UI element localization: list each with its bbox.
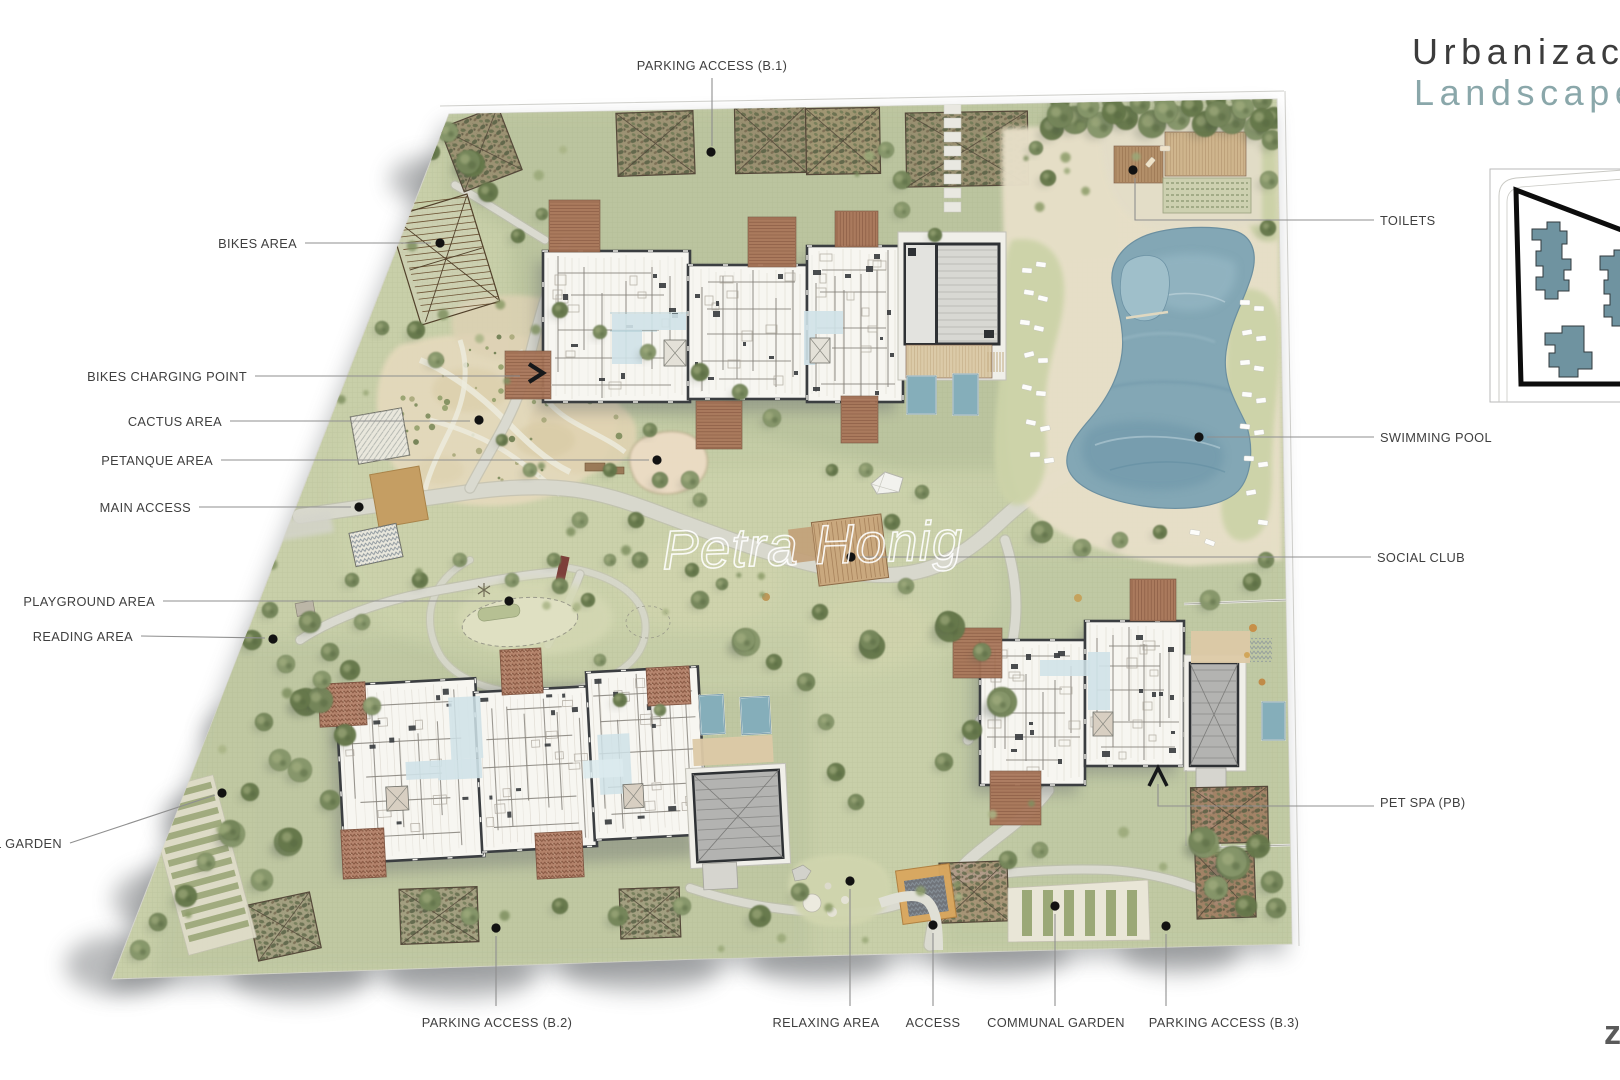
svg-text:COMMUNAL GARDEN: COMMUNAL GARDEN xyxy=(0,836,62,851)
svg-text:TOILETS: TOILETS xyxy=(1380,213,1436,228)
svg-text:READING AREA: READING AREA xyxy=(33,629,133,644)
svg-text:PARKING ACCESS (B.1): PARKING ACCESS (B.1) xyxy=(637,58,787,73)
svg-text:ACCESS: ACCESS xyxy=(906,1015,961,1030)
svg-text:Urbanización: Urbanización xyxy=(1412,31,1620,72)
svg-text:PET SPA (PB): PET SPA (PB) xyxy=(1380,795,1466,810)
svg-text:PLAYGROUND AREA: PLAYGROUND AREA xyxy=(23,594,155,609)
svg-text:CACTUS AREA: CACTUS AREA xyxy=(128,414,222,429)
svg-text:SWIMMING POOL: SWIMMING POOL xyxy=(1380,430,1492,445)
svg-text:PARKING ACCESS (B.3): PARKING ACCESS (B.3) xyxy=(1149,1015,1299,1030)
svg-text:SOCIAL CLUB: SOCIAL CLUB xyxy=(1377,550,1465,565)
svg-text:z: z xyxy=(1604,1014,1620,1052)
svg-text:RELAXING AREA: RELAXING AREA xyxy=(773,1015,880,1030)
svg-text:MAIN ACCESS: MAIN ACCESS xyxy=(100,500,191,515)
svg-text:BIKES AREA: BIKES AREA xyxy=(218,236,297,251)
svg-text:COMMUNAL GARDEN: COMMUNAL GARDEN xyxy=(987,1015,1125,1030)
svg-text:PETANQUE AREA: PETANQUE AREA xyxy=(101,453,213,468)
svg-text:Landscaped: Landscaped xyxy=(1414,72,1620,113)
svg-text:Petra Honig: Petra Honig xyxy=(661,509,964,581)
svg-text:PARKING ACCESS (B.2): PARKING ACCESS (B.2) xyxy=(422,1015,572,1030)
svg-text:BIKES CHARGING POINT: BIKES CHARGING POINT xyxy=(87,369,247,384)
